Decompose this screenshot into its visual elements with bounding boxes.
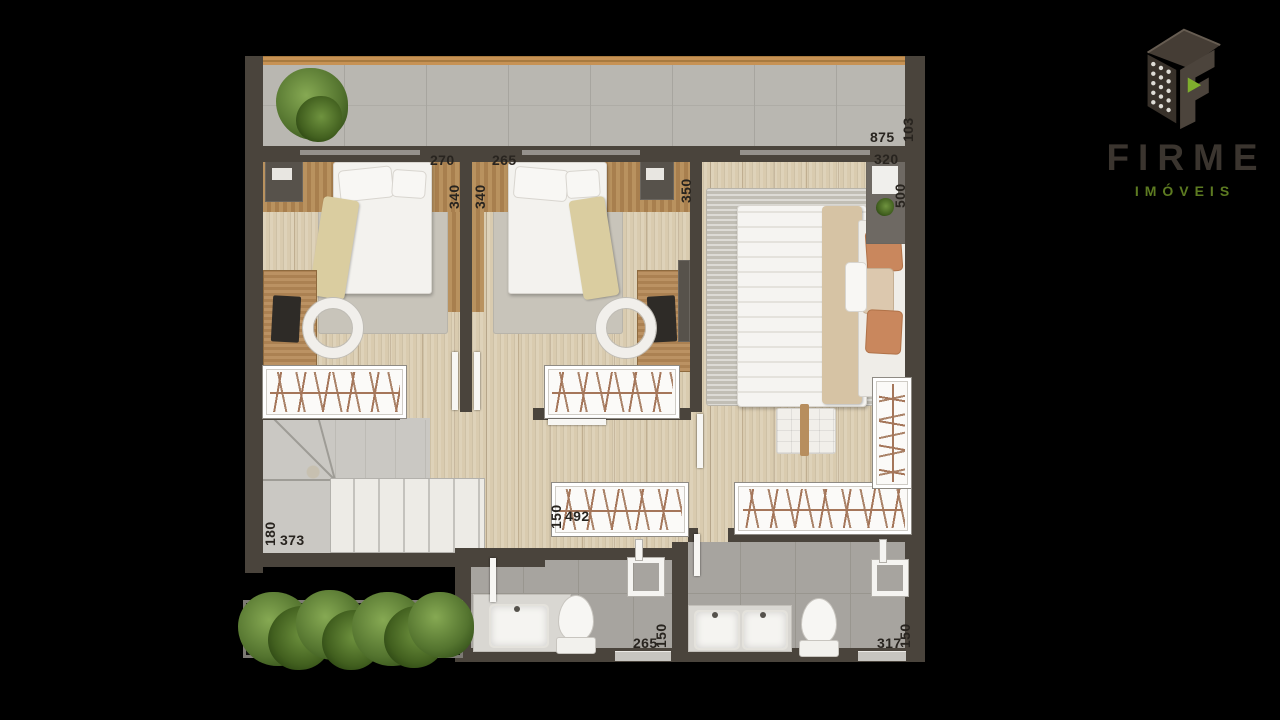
firme-building-f-icon — [1132, 22, 1232, 132]
dim-label-180: 180 — [263, 504, 278, 546]
master-door — [697, 414, 703, 468]
wall-right — [905, 56, 925, 662]
balcony-plant — [296, 96, 342, 142]
dim-label-500: 500 — [893, 166, 908, 208]
closet-rod — [552, 392, 672, 394]
bedroom1-pillow — [391, 169, 427, 199]
balcony-wood-ledge — [263, 56, 905, 65]
brand-tagline: IMÓVEIS — [1129, 183, 1235, 199]
divider-wood-panel — [472, 212, 484, 312]
bathroom-left-door — [490, 558, 496, 602]
closet-rod — [892, 384, 894, 482]
bedroom1-chair — [303, 298, 363, 358]
bathroom-right-toilet-tank — [799, 640, 839, 657]
stair-upper-treads — [335, 420, 430, 478]
dim-label-265: 265 — [492, 153, 517, 168]
dim-label-320: 320 — [874, 152, 899, 167]
closet-rod — [743, 509, 903, 511]
bathroom-left-toilet-tank — [556, 637, 596, 654]
bedroom1-laptop — [271, 295, 301, 342]
bedroom1-door — [452, 352, 458, 410]
master-balcony-window — [740, 150, 870, 155]
dim-label-150c: 150 — [898, 608, 913, 648]
bathroom-left-window — [615, 651, 671, 661]
dim-label-350: 350 — [679, 161, 694, 203]
bathroom-right-window — [858, 651, 906, 661]
bedroom2-hall-door — [548, 419, 606, 425]
dim-label-150: 150 — [549, 487, 564, 529]
master-closet-long — [735, 483, 911, 534]
bedroom1-wardrobe — [263, 366, 406, 418]
master-closet-vertical — [873, 378, 911, 488]
bedroom2-door — [474, 352, 480, 410]
dim-label-875: 875 — [870, 130, 895, 145]
stair-straight-treads — [330, 478, 485, 553]
closet-rod — [270, 392, 399, 394]
bathroom-left-shower-bar — [636, 540, 642, 560]
bathroom-right-faucet — [760, 612, 766, 618]
dim-label-340: 340 — [447, 167, 462, 209]
bedroom1-pillow — [337, 165, 394, 202]
wall-left — [245, 56, 263, 573]
dim-label-103: 103 — [901, 100, 916, 142]
master-tv — [678, 260, 690, 342]
bathroom-right-shower — [872, 560, 908, 596]
dim-label-150b: 150 — [654, 608, 669, 648]
bathroom-right-faucet — [712, 612, 718, 618]
planter-foliage — [408, 592, 474, 658]
bedroom1-balcony-window — [300, 150, 420, 155]
dim-label-492: 492 — [565, 509, 590, 524]
master-ottoman-strap — [800, 404, 809, 456]
bathroom-left-toilet-bowl — [558, 595, 594, 641]
bedroom1-tv-screen — [272, 168, 292, 180]
bedroom2-tv-screen — [646, 168, 664, 180]
dim-label-270: 270 — [430, 153, 455, 168]
floor-plan-render: 270 265 340 340 350 320 500 875 103 180 … — [0, 0, 1280, 720]
bathroom-left-shower — [628, 558, 664, 596]
wall-bathroom-middle — [672, 542, 688, 662]
brand-name: FIRME — [1097, 137, 1266, 179]
master-pillow-orange — [865, 309, 903, 355]
bathroom-right-toilet-bowl — [801, 598, 837, 644]
divider-wood-panel — [448, 212, 460, 312]
bedroom1-tv-unit — [265, 160, 303, 202]
bathroom-right-door — [694, 534, 700, 576]
bedroom2-pillow — [513, 166, 570, 203]
wall-divider-bedroom1-bedroom2 — [460, 146, 472, 412]
dim-label-373: 373 — [280, 533, 305, 548]
balcony-floor — [263, 64, 905, 146]
bedroom2-tv-unit — [640, 160, 674, 200]
bedroom2-pillow — [565, 169, 601, 199]
dim-label-340: 340 — [473, 167, 488, 209]
bedroom2-wardrobe — [545, 366, 679, 418]
bathroom-right-shower-bar — [880, 540, 886, 562]
bathroom-left-faucet — [514, 606, 520, 612]
brand-logo: FIRME IMÓVEIS — [1094, 22, 1270, 199]
bedroom2-balcony-window — [522, 150, 640, 155]
bedroom2-chair — [596, 298, 656, 358]
master-cushion-white — [845, 262, 867, 312]
